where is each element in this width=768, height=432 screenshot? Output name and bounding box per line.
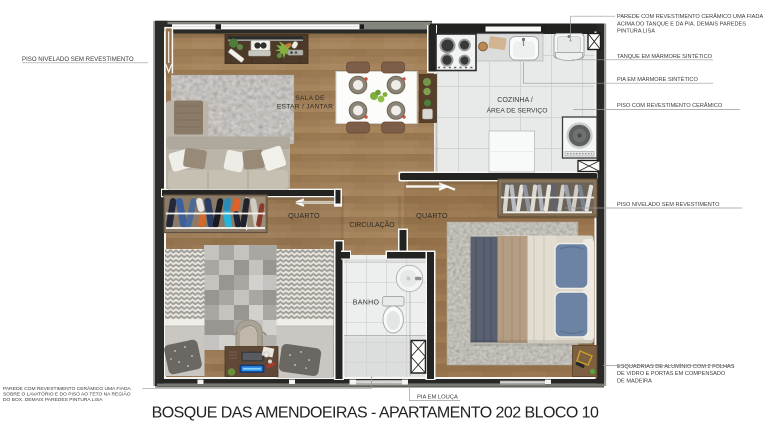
svg-text:TANQUE EM MÁRMORE SINTÉTICO: TANQUE EM MÁRMORE SINTÉTICO [617,53,713,60]
svg-text:PAREDE COM REVESTIMENTO CERÂMI: PAREDE COM REVESTIMENTO CERÂMICO UMA FIA… [617,13,763,20]
svg-text:PAREDE COM REVESTIMENTO CERÂMI: PAREDE COM REVESTIMENTO CERÂMICO UMA FIA… [3,385,132,392]
svg-text:QUARTO: QUARTO [288,211,320,220]
svg-text:COZINHA /: COZINHA / [497,96,533,104]
svg-text:QUARTO: QUARTO [416,211,448,220]
svg-text:BOSQUE DAS AMENDOEIRAS - APART: BOSQUE DAS AMENDOEIRAS - APARTAMENTO 202… [152,405,599,422]
svg-text:BANHO: BANHO [353,300,380,307]
svg-text:PISO NIVELADO SEM REVESTIMENTO: PISO NIVELADO SEM REVESTIMENTO [22,56,134,63]
svg-text:DE VIDRO E PORTAS EM COMPENSAD: DE VIDRO E PORTAS EM COMPENSADO [617,371,726,377]
svg-text:ESTAR / JANTAR: ESTAR / JANTAR [277,104,333,111]
svg-text:PISO NIVELADO SEM REVESTIMENTO: PISO NIVELADO SEM REVESTIMENTO [617,202,720,208]
svg-text:PIA EM LOUÇA: PIA EM LOUÇA [417,395,458,401]
svg-text:SALA DE: SALA DE [295,95,325,102]
svg-text:PIA EM MÁRMORE SINTÉTICO: PIA EM MÁRMORE SINTÉTICO [617,76,698,83]
svg-text:CIRCULAÇÃO: CIRCULAÇÃO [349,220,395,229]
svg-text:DE MADEIRA: DE MADEIRA [617,379,652,385]
svg-text:ACIMA DO TANQUE E DA PIA. DEMA: ACIMA DO TANQUE E DA PIA. DEMAIS PAREDES [617,21,746,27]
svg-text:DO BOX. DEMAIS PAREDES PINTURA: DO BOX. DEMAIS PAREDES PINTURA LISA [3,397,103,403]
svg-text:SOBRE O LAVATÓRIO E DO PISO AO: SOBRE O LAVATÓRIO E DO PISO AO TETO NA R… [3,391,131,398]
svg-text:PINTURA LISA: PINTURA LISA [617,29,655,35]
svg-text:ESQUADRIAS DE ALUMÍNIO COM 2 F: ESQUADRIAS DE ALUMÍNIO COM 2 FOLHAS [617,363,735,370]
svg-text:ÁREA DE SERVIÇO: ÁREA DE SERVIÇO [487,105,548,114]
svg-text:PISO COM REVESTIMENTO CERÂMICO: PISO COM REVESTIMENTO CERÂMICO [617,102,723,109]
